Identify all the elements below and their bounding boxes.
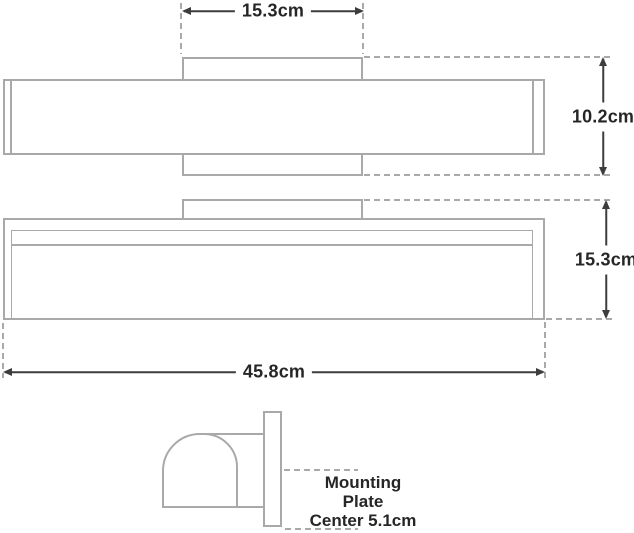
dimension-label-fixture-width: 45.8cm <box>236 361 312 384</box>
arrowhead-right-icon <box>355 7 364 15</box>
fixture-bar-top-view <box>3 79 545 155</box>
dimension-backplate-width: 15.3cm <box>182 2 364 20</box>
dimension-label-fixture-depth: 10.2cm <box>570 102 634 131</box>
dimension-label-fixture-height: 15.3cm <box>573 245 634 274</box>
shade-dome-side-view <box>162 433 238 508</box>
arrowhead-left-icon <box>182 7 191 15</box>
arrowhead-down-icon <box>599 167 607 176</box>
arrowhead-down-icon <box>602 310 610 319</box>
arrowhead-left-icon <box>3 368 12 376</box>
dimension-fixture-depth: 10.2cm <box>571 57 634 176</box>
shade-rim-line-front-view <box>12 244 532 246</box>
arm-top-line-side-view <box>200 433 263 435</box>
dimension-label-backplate-width: 15.3cm <box>235 0 311 23</box>
bar-endcap-line-left <box>10 81 12 153</box>
arrowhead-right-icon <box>536 368 545 376</box>
mounting-plate-note: Mounting Plate Center 5.1cm <box>304 473 422 530</box>
dimension-fixture-height: 15.3cm <box>574 200 634 319</box>
mounting-note-line-2: Plate <box>304 492 422 511</box>
leader-line-plate-center <box>284 469 358 471</box>
spec-diagram: 15.3cm 10.2cm 15.3cm 45.8cm Mounting Pla… <box>0 0 634 533</box>
dimension-fixture-width: 45.8cm <box>3 363 545 381</box>
mounting-note-line-1: Mounting <box>304 473 422 492</box>
mounting-note-line-3: Center 5.1cm <box>304 511 422 530</box>
arrowhead-up-icon <box>599 57 607 66</box>
bar-endcap-line-right <box>532 81 534 153</box>
arrowhead-up-icon <box>602 200 610 209</box>
arm-bottom-line-side-view <box>237 506 263 508</box>
mounting-plate-side-view <box>263 411 282 527</box>
